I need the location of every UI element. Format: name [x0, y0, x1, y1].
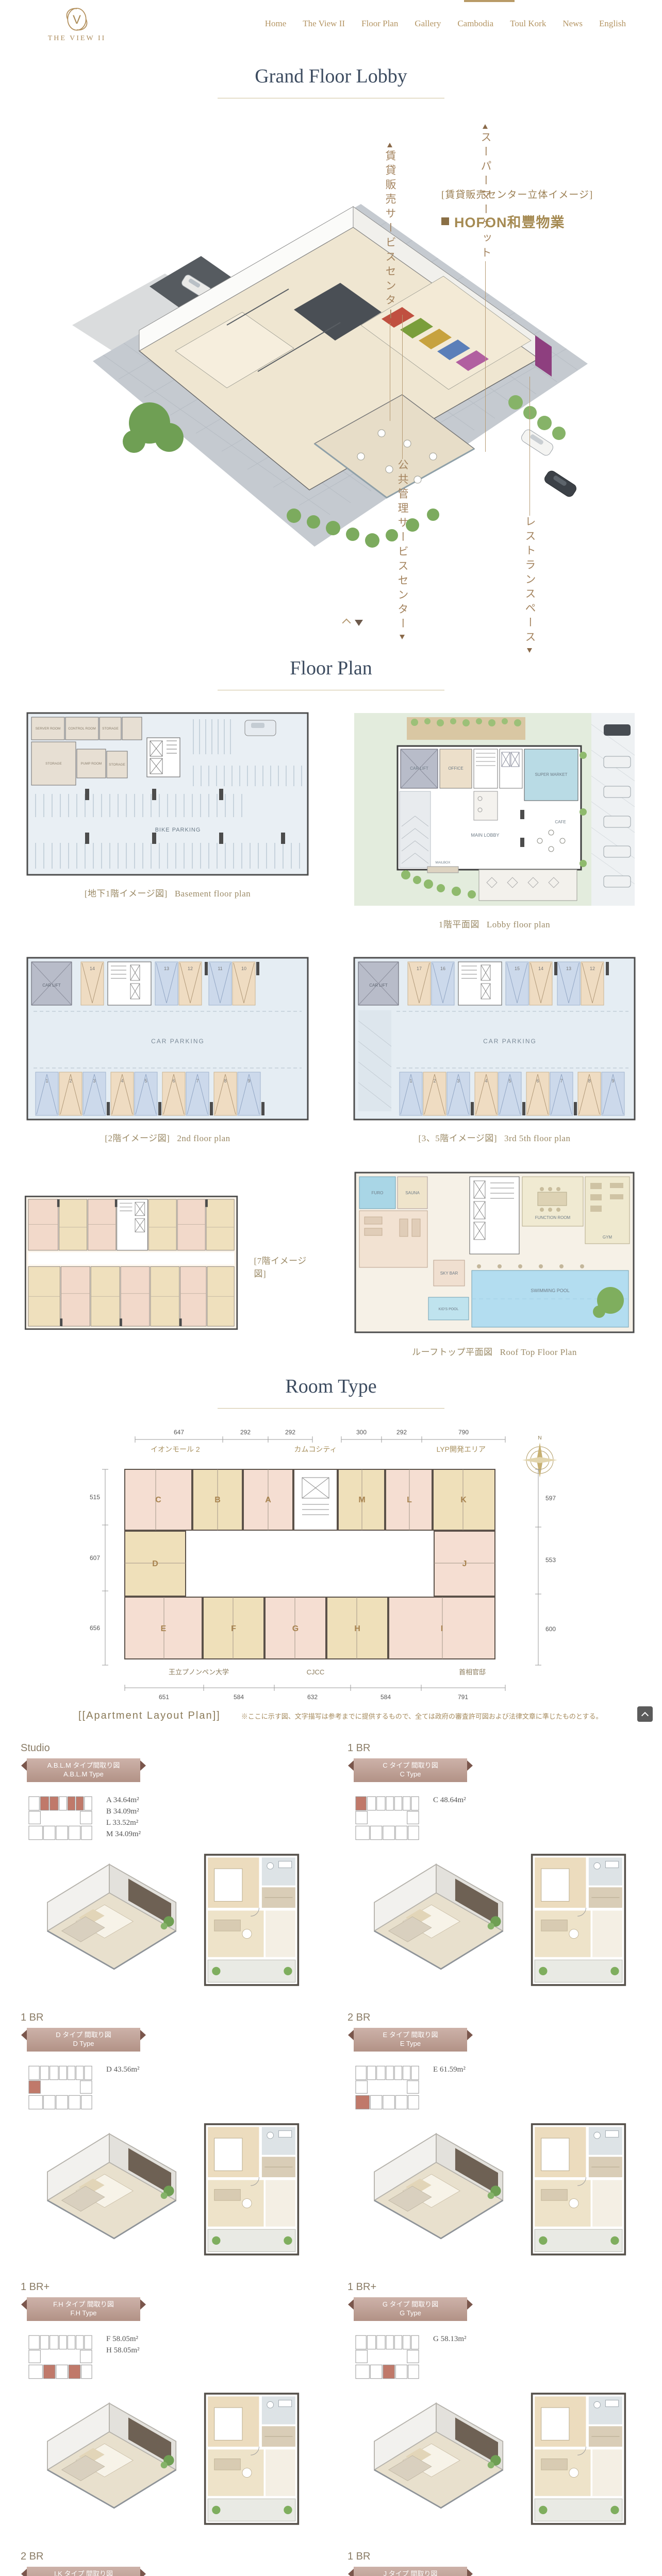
title-rule [218, 1408, 444, 1409]
nav-item-floor-plan[interactable]: Floor Plan [361, 19, 398, 29]
room-type-card-d: 1 BR D タイプ 間取り図 D Type D 43.56m² [21, 2012, 315, 2264]
svg-text:LYP開発エリア: LYP開発エリア [437, 1445, 486, 1453]
svg-text:M: M [358, 1496, 365, 1504]
svg-text:5: 5 [508, 1078, 511, 1083]
section-room-type: Room Type N 647 292 292 300 292 790 [0, 1358, 662, 2576]
key-plan-image [347, 2059, 425, 2116]
key-plan-image [21, 1789, 98, 1847]
svg-text:A: A [265, 1496, 271, 1504]
unit-info: A 34.64m² B 34.09m² L 33.52m² M 34.09m² [21, 1789, 315, 1847]
floor-plan-grid: SERVER ROOM CONTROL ROOM STORAGE STORAGE… [21, 709, 641, 1358]
room-type-card-e: 2 BR E タイプ 間取り図 E Type E 61.59m² [347, 2012, 641, 2264]
unit-category: 1 BR+ [21, 2281, 315, 2293]
unit-areas: D 43.56m² [106, 2059, 140, 2075]
floor-plan-2nd: CAR LIFT 14 13 [21, 954, 315, 1144]
svg-text:14: 14 [538, 966, 543, 971]
ribbon-jp: I.K タイプ 間取り図 [27, 2569, 140, 2576]
svg-text:600: 600 [545, 1625, 556, 1633]
svg-text:656: 656 [90, 1624, 100, 1632]
floor-plan-7th: [7階イメージ図] [21, 1167, 315, 1358]
unit-ribbon: D タイプ 間取り図 D Type [27, 2028, 140, 2052]
svg-text:F: F [231, 1624, 236, 1633]
apartment-layout-plan-image: N 647 292 292 300 292 790 イオンモール 2 カムコシテ… [73, 1424, 589, 1702]
unit-3d-render-image [359, 2389, 514, 2513]
svg-text:2: 2 [69, 1078, 72, 1083]
unit-areas: E 61.59m² [433, 2059, 466, 2075]
unit-3d-render-image [359, 1850, 514, 1974]
ribbon-en: C Type [354, 1770, 467, 1778]
svg-text:H: H [354, 1624, 360, 1633]
site-logo[interactable]: V THE VIEW II [38, 5, 115, 43]
unit-areas: F 58.05m² H 58.05m² [106, 2328, 140, 2356]
svg-text:D: D [152, 1560, 158, 1568]
unit-ribbon: C タイプ 間取り図 C Type [354, 1758, 467, 1782]
logo-name: THE VIEW II [48, 35, 106, 43]
unit-plan-image [527, 2120, 630, 2264]
nav-item-the-view-ii[interactable]: The View II [303, 19, 345, 29]
unit-renders [347, 2120, 641, 2264]
svg-text:292: 292 [240, 1429, 251, 1436]
unit-plan-image [200, 2120, 303, 2264]
floor-plan-3rd-5th: CAR LIFT 17 [347, 954, 641, 1144]
svg-text:11: 11 [218, 966, 222, 971]
ribbon-jp: A.B.L.M タイプ間取り図 [27, 1761, 140, 1770]
svg-text:1: 1 [409, 1078, 412, 1083]
section-grand-floor-lobby: Grand Floor Lobby [0, 47, 662, 639]
svg-text:12: 12 [188, 966, 193, 971]
unit-areas: G 58.13m² [433, 2328, 467, 2345]
unit-plan-image [200, 1850, 303, 1994]
svg-text:CAR LIFT: CAR LIFT [410, 766, 428, 771]
svg-text:15: 15 [515, 966, 520, 971]
ribbon-jp: J タイプ 間取り図 [354, 2569, 467, 2576]
floor-plan-basement: SERVER ROOM CONTROL ROOM STORAGE STORAGE… [21, 709, 315, 930]
title-rule [218, 690, 444, 690]
layout-plan-disclaimer: ※ここに示す図、文字描写は参考までに提供するもので、全ては政府の審査許可図および… [241, 1711, 603, 1721]
room-type-card-c: 1 BR C タイプ 間取り図 C Type C 48.64m² [347, 1742, 641, 1994]
ribbon-jp: G タイプ 間取り図 [354, 2300, 467, 2309]
leader-line [402, 315, 403, 459]
svg-text:651: 651 [159, 1693, 169, 1701]
unit-info: C 48.64m² [347, 1789, 641, 1847]
triangle-down-icon [355, 620, 363, 626]
unit-plan-image [527, 2389, 630, 2533]
floor-plan-caption: 1階平面図Lobby floor plan [439, 917, 550, 930]
unit-category: 1 BR [347, 2551, 641, 2563]
unit-category: 1 BR [21, 2012, 315, 2024]
back-to-top-button[interactable] [637, 1706, 653, 1722]
svg-text:4: 4 [121, 1078, 123, 1083]
svg-text:CAR PARKING: CAR PARKING [483, 1038, 537, 1045]
apartment-layout-plan: N 647 292 292 300 292 790 イオンモール 2 カムコシテ… [73, 1424, 589, 1705]
basement-floor-plan-image: SERVER ROOM CONTROL ROOM STORAGE STORAGE… [23, 709, 312, 879]
nav-item-news[interactable]: News [562, 19, 583, 29]
svg-text:12: 12 [590, 966, 595, 971]
unit-areas: A 34.64m² B 34.09m² L 33.52m² M 34.09m² [106, 1789, 141, 1840]
brand-name: HOFON和豐物業 [454, 211, 565, 231]
svg-text:E: E [161, 1624, 167, 1633]
unit-category: 1 BR+ [347, 2281, 641, 2293]
layout-plan-caption: [[Apartment Layout Plan]] [78, 1710, 221, 1722]
nav-active-indicator [464, 0, 515, 2]
svg-text:292: 292 [285, 1429, 295, 1436]
svg-text:I: I [441, 1624, 443, 1633]
svg-text:607: 607 [90, 1554, 100, 1562]
svg-text:16: 16 [440, 966, 445, 971]
svg-text:300: 300 [356, 1429, 367, 1436]
unit-renders [347, 2389, 641, 2533]
svg-text:7: 7 [560, 1078, 562, 1083]
svg-text:5: 5 [144, 1078, 147, 1083]
floor-plan-caption-side: [7階イメージ図] [254, 1253, 315, 1279]
svg-text:J: J [462, 1560, 467, 1568]
svg-text:STORAGE: STORAGE [45, 762, 62, 766]
ribbon-jp: D タイプ 間取り図 [27, 2030, 140, 2039]
svg-text:584: 584 [234, 1693, 244, 1701]
unit-category: Studio [21, 1742, 315, 1754]
svg-text:STORAGE: STORAGE [109, 763, 125, 767]
svg-text:PUMP ROOM: PUMP ROOM [81, 762, 102, 766]
svg-text:13: 13 [164, 966, 169, 971]
unit-info: F 58.05m² H 58.05m² [21, 2328, 315, 2386]
ribbon-jp: F.H タイプ 間取り図 [27, 2300, 140, 2309]
svg-text:V: V [73, 13, 81, 27]
floor-plan-caption: ルーフトップ平面図Roof Top Floor Plan [412, 1345, 577, 1358]
floor-plan-rooftop: FURO SAUNA FUNCTION ROOM GYM SKY BAR KID… [347, 1167, 641, 1358]
svg-text:MAILBOX: MAILBOX [436, 861, 451, 865]
unit-info: E 61.59m² [347, 2059, 641, 2116]
svg-text:STORAGE: STORAGE [102, 727, 119, 731]
svg-text:FUNCTION ROOM: FUNCTION ROOM [535, 1215, 571, 1220]
svg-text:FURO: FURO [372, 1191, 384, 1195]
room-type-card-fh: 1 BR+ F.H タイプ 間取り図 F.H Type F 58.05m² H … [21, 2281, 315, 2533]
ribbon-en: G Type [354, 2309, 467, 2317]
unit-plan-image [527, 1850, 630, 1994]
unit-ribbon: G タイプ 間取り図 G Type [354, 2297, 467, 2321]
nav-item-english[interactable]: English [599, 19, 626, 29]
svg-text:14: 14 [90, 966, 95, 971]
svg-text:292: 292 [396, 1429, 407, 1436]
svg-text:7: 7 [196, 1078, 198, 1083]
svg-text:790: 790 [458, 1429, 469, 1436]
unit-info: D 43.56m² [21, 2059, 315, 2116]
svg-text:GYM: GYM [603, 1235, 613, 1240]
annotation-restaurant-space: レストランスペース [460, 377, 599, 653]
lobby-brand-row: HOFON和豐物業 [441, 211, 653, 231]
floor-plan-section-title: Floor Plan [0, 657, 662, 680]
section-floor-plan: Floor Plan SERVER ROOM CONTROL ROOM STOR… [0, 639, 662, 1358]
unit-category: 2 BR [347, 2012, 641, 2024]
logo-emblem-icon: V [61, 5, 93, 37]
svg-text:CJCC: CJCC [307, 1668, 325, 1676]
chevron-up-icon [641, 1712, 649, 1719]
ribbon-en: E Type [354, 2039, 467, 2048]
second-floor-plan-image: CAR LIFT 14 13 [23, 954, 312, 1124]
layout-caption-row: [[Apartment Layout Plan]] ※ここに示す図、文字描写は参… [47, 1710, 615, 1722]
lobby-caption-text: [賃貸販売センター立体イメージ] [441, 187, 653, 201]
nav-item-toul-kork[interactable]: Toul Kork [510, 19, 546, 29]
svg-text:8: 8 [588, 1078, 590, 1083]
floor-plan-caption: [2階イメージ図]2nd floor plan [105, 1131, 230, 1144]
svg-text:K: K [460, 1496, 467, 1504]
unit-renders [21, 2389, 315, 2533]
nav-item-home[interactable]: Home [265, 19, 287, 29]
unit-3d-render-image [359, 2120, 514, 2243]
svg-text:6: 6 [172, 1078, 175, 1083]
floor-plan-caption: [3、5階イメージ図]3rd 5th floor plan [419, 1131, 571, 1144]
svg-text:SUPER MARKET: SUPER MARKET [535, 772, 567, 777]
svg-text:515: 515 [90, 1494, 100, 1501]
svg-text:王立プノンペン大学: 王立プノンペン大学 [169, 1668, 229, 1676]
site-header: V THE VIEW II Home The View II Floor Pla… [0, 0, 662, 47]
svg-text:B: B [214, 1496, 221, 1504]
arrow-up-icon [387, 143, 392, 147]
scroll-hint [343, 620, 363, 626]
svg-text:N: N [538, 1435, 541, 1441]
svg-text:BIKE PARKING: BIKE PARKING [155, 827, 201, 833]
svg-text:632: 632 [307, 1693, 318, 1701]
room-type-card-ik: 2 BR I.K タイプ 間取り図 I.K Type I 66.49m² K 6… [21, 2551, 315, 2576]
svg-text:首相官邸: 首相官邸 [459, 1668, 486, 1676]
lobby-caption: [賃貸販売センター立体イメージ] HOFON和豐物業 [441, 187, 653, 231]
svg-text:L: L [407, 1496, 412, 1504]
leader-line [529, 377, 530, 516]
lobby-section-title: Grand Floor Lobby [0, 65, 662, 88]
svg-text:9: 9 [611, 1078, 614, 1083]
svg-text:647: 647 [174, 1429, 184, 1436]
svg-text:597: 597 [545, 1495, 556, 1502]
key-plan-image [21, 2328, 98, 2386]
svg-text:17: 17 [417, 966, 422, 971]
svg-text:3: 3 [93, 1078, 95, 1083]
svg-text:791: 791 [458, 1693, 468, 1701]
rooftop-floor-plan-image: FURO SAUNA FUNCTION ROOM GYM SKY BAR KID… [350, 1167, 639, 1337]
svg-text:10: 10 [241, 966, 246, 971]
svg-text:C: C [155, 1496, 161, 1504]
svg-text:CAR LIFT: CAR LIFT [369, 983, 388, 988]
room-type-cards: Studio A.B.L.M タイプ間取り図 A.B.L.M Type A 34… [21, 1742, 641, 2576]
unit-ribbon: E タイプ 間取り図 E Type [354, 2028, 467, 2052]
ribbon-jp: E タイプ 間取り図 [354, 2030, 467, 2039]
key-plan-image [21, 2059, 98, 2116]
unit-renders [21, 1850, 315, 1994]
svg-text:カムコシティ: カムコシティ [294, 1445, 337, 1453]
room-type-card-studio: Studio A.B.L.M タイプ間取り図 A.B.L.M Type A 34… [21, 1742, 315, 1994]
svg-text:584: 584 [380, 1693, 391, 1701]
svg-text:2: 2 [433, 1078, 436, 1083]
nav-item-cambodia[interactable]: Cambodia [457, 19, 493, 29]
floor-plan-caption: [地下1階イメージ図]Basement floor plan [85, 886, 251, 899]
svg-text:3: 3 [457, 1078, 459, 1083]
nav-item-gallery[interactable]: Gallery [415, 19, 441, 29]
chevron-up-icon [342, 619, 351, 628]
svg-text:CONTROL ROOM: CONTROL ROOM [68, 727, 96, 731]
svg-text:CAFE: CAFE [555, 820, 566, 824]
ribbon-en: F.H Type [27, 2309, 140, 2317]
unit-category: 1 BR [347, 1742, 641, 1754]
unit-renders [347, 1850, 641, 1994]
svg-text:6: 6 [536, 1078, 539, 1083]
lobby-floor-plan-image: CAR LIFT OFFICE SUPER MARKET MAIN LOBBY … [350, 709, 639, 910]
unit-plan-image [200, 2389, 303, 2533]
svg-text:13: 13 [566, 966, 571, 971]
svg-text:SKY BAR: SKY BAR [440, 1271, 458, 1276]
unit-3d-render-image [32, 2389, 187, 2513]
room-type-section-title: Room Type [0, 1375, 662, 1398]
svg-text:553: 553 [545, 1556, 556, 1564]
arrow-up-icon [483, 124, 488, 129]
ribbon-en: D Type [27, 2039, 140, 2048]
arrow-down-icon [400, 635, 405, 639]
unit-ribbon: A.B.L.M タイプ間取り図 A.B.L.M Type [27, 1758, 140, 1782]
svg-text:4: 4 [485, 1078, 487, 1083]
svg-text:CAR PARKING: CAR PARKING [151, 1038, 205, 1045]
svg-text:KID'S POOL: KID'S POOL [438, 1308, 458, 1311]
svg-text:SERVER ROOM: SERVER ROOM [36, 727, 61, 731]
unit-ribbon: I.K タイプ 間取り図 I.K Type [27, 2567, 140, 2576]
key-plan-image [347, 2328, 425, 2386]
third-fifth-floor-plan-image: CAR LIFT 17 [350, 954, 639, 1124]
key-plan-image [347, 1789, 425, 1847]
unit-category: 2 BR [21, 2551, 315, 2563]
room-type-card-g: 1 BR+ G タイプ 間取り図 G Type G 58.13m² [347, 2281, 641, 2533]
arrow-down-icon [527, 648, 532, 653]
unit-ribbon: J タイプ 間取り図 J Type [354, 2567, 467, 2576]
ribbon-en: A.B.L.M Type [27, 1770, 140, 1778]
svg-text:イオンモール 2: イオンモール 2 [151, 1445, 200, 1453]
unit-ribbon: F.H タイプ 間取り図 F.H Type [27, 2297, 140, 2321]
svg-text:1: 1 [45, 1078, 48, 1083]
floor-plan-lobby: CAR LIFT OFFICE SUPER MARKET MAIN LOBBY … [347, 709, 641, 930]
svg-text:CAR LIFT: CAR LIFT [42, 983, 61, 988]
svg-text:SWIMMING POOL: SWIMMING POOL [531, 1288, 570, 1293]
ribbon-jp: C タイプ 間取り図 [354, 1761, 467, 1770]
room-type-card-j: 1 BR J タイプ 間取り図 J Type J 46.96m² [347, 2551, 641, 2576]
unit-3d-render-image [32, 1850, 187, 1974]
annotation-label: 公共管理サービスセンター [394, 459, 410, 632]
svg-text:G: G [292, 1624, 299, 1633]
unit-3d-render-image [32, 2120, 187, 2243]
unit-areas: C 48.64m² [433, 1789, 466, 1806]
brand-bullet-icon [441, 217, 449, 225]
annotation-label: レストランスペース [522, 516, 537, 646]
unit-renders [21, 2120, 315, 2264]
svg-text:8: 8 [224, 1078, 226, 1083]
svg-text:OFFICE: OFFICE [448, 766, 463, 771]
unit-info: G 58.13m² [347, 2328, 641, 2386]
svg-text:SAUNA: SAUNA [405, 1191, 420, 1195]
lobby-3d-scene: 賃貸販売サービスセンター スーパーマーケット [賃貸販売センター立体イメージ] … [0, 98, 662, 639]
main-nav: Home The View II Floor Plan Gallery Camb… [265, 19, 626, 29]
svg-text:MAIN LOBBY: MAIN LOBBY [471, 833, 499, 838]
seventh-floor-plan-image [21, 1185, 246, 1340]
annotation-label: 賃貸販売サービスセンター [382, 150, 398, 323]
svg-text:9: 9 [247, 1078, 250, 1083]
